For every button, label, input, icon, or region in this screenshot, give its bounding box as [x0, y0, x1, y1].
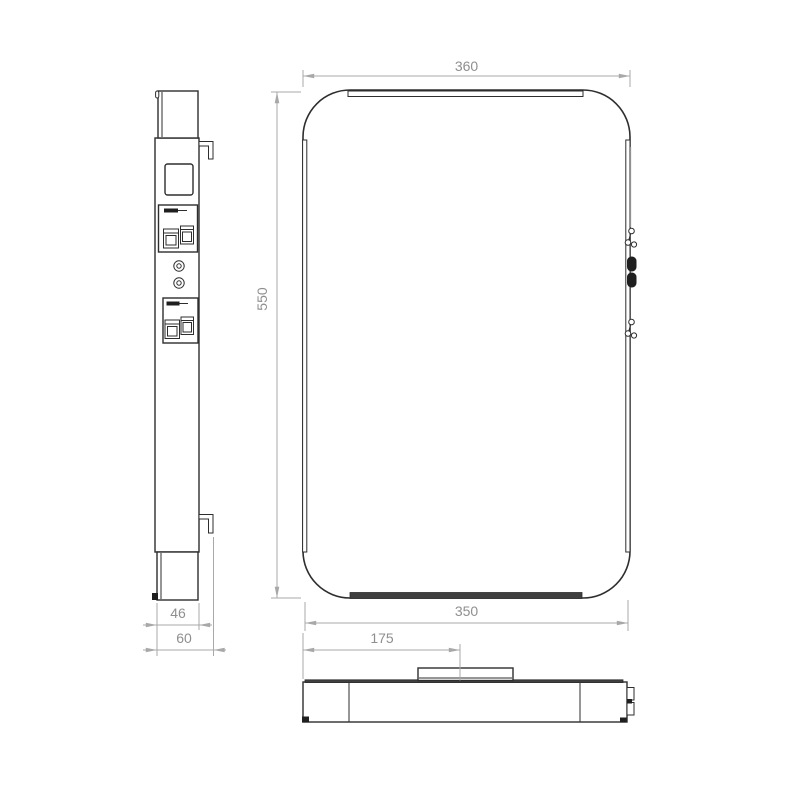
technical-drawing: 46 60 [0, 0, 800, 800]
terminal-bottom-left-opening [168, 327, 178, 337]
clip-ring [625, 240, 631, 246]
hole-bottom-inner [177, 281, 181, 285]
terminal-top-right-opening [183, 232, 192, 242]
front-edge-strip-top [348, 91, 583, 97]
front-view: 360 550 350 [254, 58, 637, 631]
terminal-block-bottom-label-bar [167, 302, 180, 306]
side-body [155, 138, 199, 552]
clip-ring [629, 228, 635, 234]
dim-value-360: 360 [455, 58, 479, 74]
mount-bracket [418, 668, 513, 681]
front-edge-strip-bottom [350, 593, 582, 599]
side-top-section [158, 91, 198, 138]
mount-hook-bottom [199, 515, 213, 534]
bottom-body [303, 682, 627, 722]
clip-ring [631, 242, 636, 247]
dim-front-width: 360 [303, 58, 630, 87]
dim-value-175: 175 [370, 630, 394, 646]
drawing-canvas: 46 60 [0, 0, 800, 800]
dim-value-60: 60 [176, 630, 192, 646]
front-edge-strip-left [303, 140, 307, 552]
side-top-corner-nub [156, 91, 159, 98]
latch-bump-lower [627, 273, 637, 288]
terminal-bottom-right-opening [183, 323, 192, 333]
side-bottom-foot [152, 593, 158, 600]
terminal-top-left-opening [166, 236, 176, 246]
dim-front-bottom-width: 350 [305, 600, 628, 631]
rear-connector-lower [627, 703, 634, 716]
bottom-foot-left [302, 717, 309, 723]
mount-hook-top [199, 142, 213, 160]
bottom-foot-right [620, 718, 627, 723]
dim-value-550: 550 [254, 287, 270, 311]
front-edge-strip-right [626, 140, 630, 552]
front-panel-outline [303, 90, 630, 598]
terminal-block-top [159, 205, 198, 252]
hole-top-inner [177, 264, 181, 268]
dim-value-46: 46 [170, 605, 186, 621]
clip-ring [625, 331, 631, 337]
terminal-block-bottom [163, 298, 198, 343]
latch-bump-upper [627, 257, 637, 272]
clip-ring [631, 333, 636, 338]
side-label-window [165, 164, 193, 195]
side-bottom-section [157, 552, 198, 600]
terminal-block-top-label-bar [164, 209, 178, 213]
clip-ring [629, 319, 635, 325]
rear-connector-upper [627, 688, 634, 701]
dim-value-350: 350 [455, 603, 479, 619]
rear-connectors [627, 688, 634, 716]
dim-front-height: 550 [254, 92, 301, 598]
side-view: 46 60 [143, 91, 226, 656]
rear-connector-block [627, 699, 632, 704]
bottom-view: 175 [302, 630, 634, 723]
